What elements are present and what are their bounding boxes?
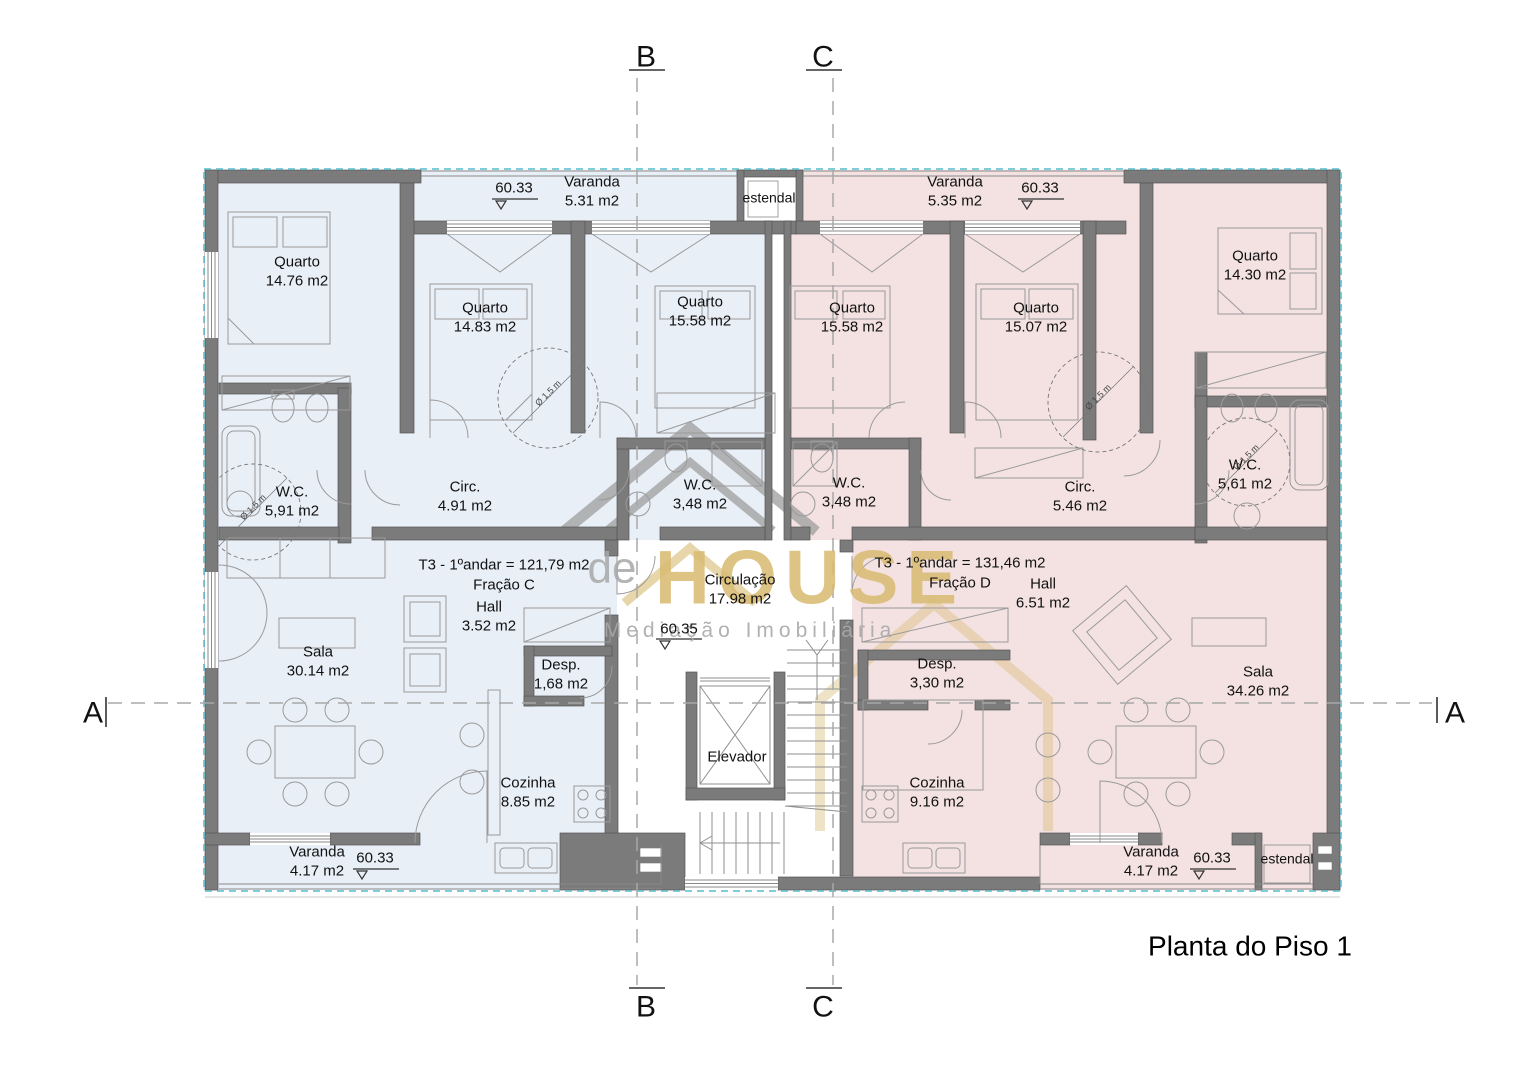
level-60-33-bottom-right: 60.33 <box>1193 850 1231 869</box>
section-marker-c-top: C <box>812 38 834 76</box>
room-label-c-quarto-1558: Quarto15.58 m2 <box>669 293 732 331</box>
room-label-d-cozinha: Cozinha9.16 m2 <box>909 774 964 812</box>
room-label-c-varanda-531: Varanda5.31 m2 <box>564 173 620 211</box>
level-60-33-top-left: 60.33 <box>495 180 533 199</box>
unit-d-fraction: Fração D <box>929 575 991 594</box>
room-label-d-hall: Hall6.51 m2 <box>1016 575 1070 613</box>
watermark-prefix: de <box>588 541 637 596</box>
room-label-d-quarto-1430: Quarto14.30 m2 <box>1224 247 1287 285</box>
room-label-d-varanda-535: Varanda5.35 m2 <box>927 173 983 211</box>
room-label-c-wc-591: W.C.5,91 m2 <box>265 483 319 521</box>
level-60-33-bottom-left: 60.33 <box>356 850 394 869</box>
section-marker-c-bottom: C <box>812 988 834 1026</box>
unit-c-summary: T3 - 1ºandar = 121,79 m2 <box>419 557 590 576</box>
level-60-33-top-right: 60.33 <box>1021 180 1059 199</box>
section-marker-b-bottom: B <box>636 988 656 1026</box>
room-label-circulacao: Circulação17.98 m2 <box>705 571 776 609</box>
floor-plan: de HOUSE Mediação Imobiliária Quarto14.7… <box>0 0 1528 1080</box>
label-estendal-top: estendal <box>743 189 796 207</box>
unit-c-fraction: Fração C <box>473 577 535 596</box>
label-estendal-bottom: estendal <box>1261 850 1314 868</box>
room-label-d-wc-348: W.C.3,48 m2 <box>822 474 876 512</box>
room-label-d-desp: Desp.3,30 m2 <box>910 655 964 693</box>
section-marker-b-top: B <box>636 38 656 76</box>
room-label-c-circ: Circ.4.91 m2 <box>438 478 492 516</box>
unit-d-summary: T3 - 1ºandar = 131,46 m2 <box>875 555 1046 574</box>
room-label-c-sala: Sala30.14 m2 <box>287 643 350 681</box>
room-label-c-hall: Hall3.52 m2 <box>462 598 516 636</box>
room-label-d-quarto-1507: Quarto15.07 m2 <box>1005 299 1068 337</box>
room-label-d-varanda-417: Varanda4.17 m2 <box>1123 843 1179 881</box>
room-label-c-quarto-1483: Quarto14.83 m2 <box>454 299 517 337</box>
section-marker-a-right: A <box>1445 694 1465 732</box>
watermark-brand: HOUSE <box>655 531 965 626</box>
watermark-tagline: Mediação Imobiliária <box>604 618 897 644</box>
section-marker-a-left: A <box>83 694 103 732</box>
room-label-c-quarto-1476: Quarto14.76 m2 <box>266 253 329 291</box>
room-label-d-circ: Circ.5.46 m2 <box>1053 478 1107 516</box>
page-title: Planta do Piso 1 <box>1148 929 1352 964</box>
room-label-c-wc-348: W.C.3,48 m2 <box>673 476 727 514</box>
level-60-35-circulation: 60.35 <box>660 621 698 640</box>
room-label-d-sala: Sala34.26 m2 <box>1227 663 1290 701</box>
room-label-c-desp: Desp.1,68 m2 <box>534 656 588 694</box>
room-label-d-quarto-1558: Quarto15.58 m2 <box>821 299 884 337</box>
room-label-c-cozinha: Cozinha8.85 m2 <box>500 774 555 812</box>
room-label-c-varanda-417: Varanda4.17 m2 <box>289 843 345 881</box>
room-label-elevador: Elevador <box>707 749 766 768</box>
